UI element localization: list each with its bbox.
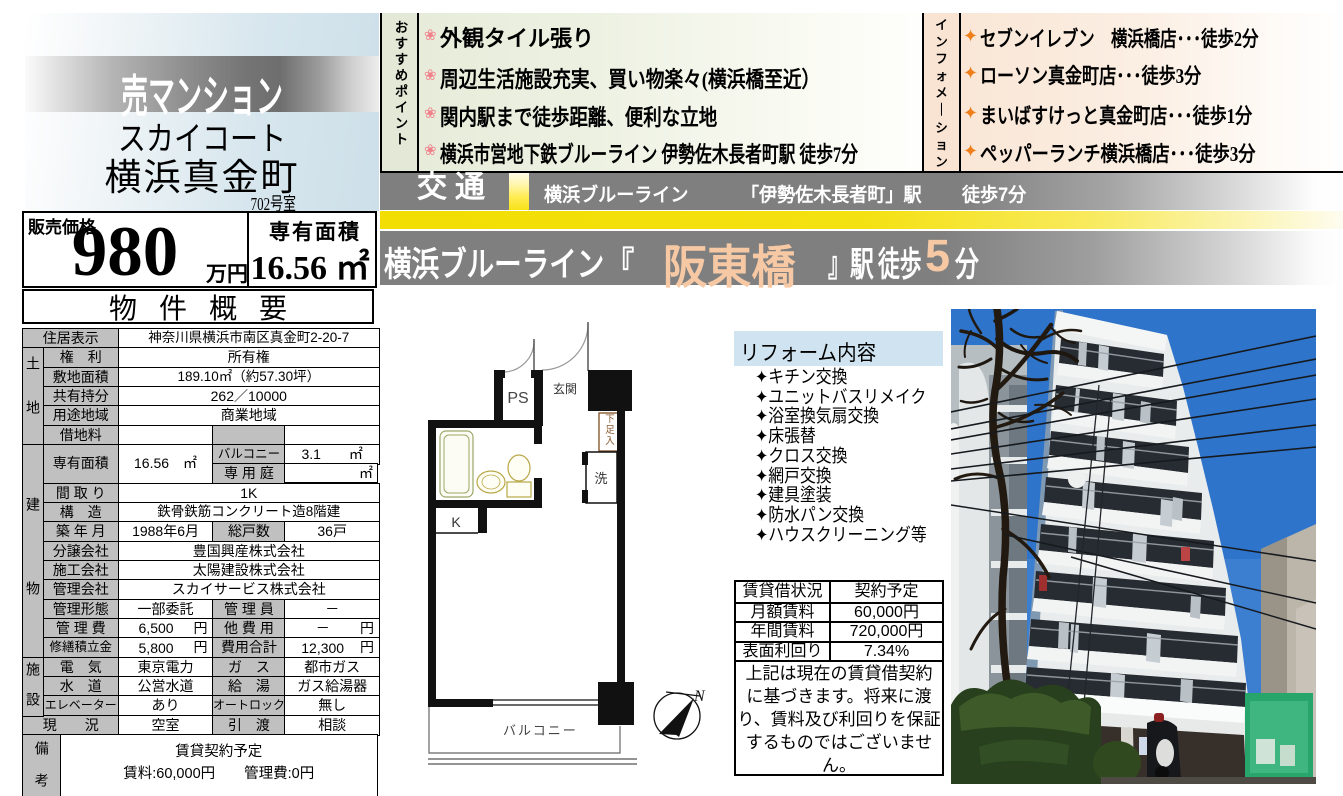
svg-text:N: N — [693, 688, 706, 705]
svg-text:下: 下 — [605, 414, 615, 425]
svg-text:入: 入 — [605, 436, 615, 447]
svg-text:玄関: 玄関 — [553, 382, 577, 396]
svg-text:洗: 洗 — [594, 471, 607, 486]
svg-text:PS: PS — [507, 390, 528, 407]
svg-text:バルコニー: バルコニー — [503, 723, 578, 738]
svg-text:K: K — [451, 514, 461, 530]
svg-text:足: 足 — [605, 425, 615, 436]
